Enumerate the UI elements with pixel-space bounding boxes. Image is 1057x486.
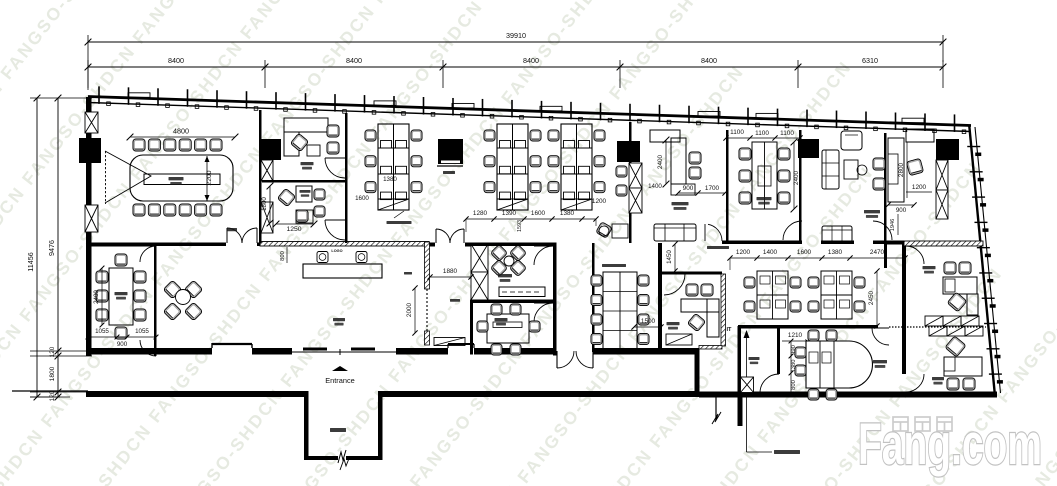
svg-text:9476: 9476 bbox=[47, 240, 56, 256]
svg-text:2000: 2000 bbox=[406, 302, 413, 317]
svg-text:2400: 2400 bbox=[93, 290, 100, 304]
svg-text:8400: 8400 bbox=[168, 56, 184, 65]
svg-text:1250: 1250 bbox=[286, 226, 301, 233]
svg-text:1400: 1400 bbox=[648, 183, 662, 190]
svg-text:IT: IT bbox=[727, 327, 733, 333]
svg-text:1100: 1100 bbox=[730, 129, 744, 136]
svg-text:1946: 1946 bbox=[890, 219, 896, 231]
svg-text:1500: 1500 bbox=[641, 318, 656, 325]
svg-text:8400: 8400 bbox=[346, 56, 362, 65]
svg-text:1600: 1600 bbox=[797, 249, 812, 256]
svg-text:120: 120 bbox=[49, 390, 56, 401]
svg-text:1200: 1200 bbox=[592, 198, 607, 205]
svg-text:1800: 1800 bbox=[49, 366, 56, 381]
svg-text:1800: 1800 bbox=[261, 197, 268, 211]
svg-text:11456: 11456 bbox=[26, 252, 35, 271]
svg-text:1450: 1450 bbox=[666, 250, 673, 264]
svg-text:1380: 1380 bbox=[560, 210, 575, 217]
svg-text:900: 900 bbox=[117, 341, 128, 348]
svg-text:6310: 6310 bbox=[862, 56, 878, 65]
svg-text:800: 800 bbox=[280, 251, 286, 261]
svg-text:1200: 1200 bbox=[736, 249, 751, 256]
svg-text:LOGO: LOGO bbox=[331, 249, 342, 253]
svg-text:Entrance: Entrance bbox=[325, 376, 355, 385]
svg-text:900: 900 bbox=[683, 185, 694, 192]
svg-text:1380: 1380 bbox=[383, 176, 397, 183]
svg-text:1390: 1390 bbox=[502, 210, 517, 217]
svg-text:2400: 2400 bbox=[657, 154, 664, 169]
svg-text:1100: 1100 bbox=[780, 130, 794, 137]
svg-text:39910: 39910 bbox=[506, 31, 526, 40]
svg-text:1200: 1200 bbox=[912, 184, 927, 191]
svg-text:900: 900 bbox=[896, 207, 907, 214]
svg-text:1593: 1593 bbox=[517, 220, 523, 232]
svg-text:1280: 1280 bbox=[473, 210, 488, 217]
svg-text:1880: 1880 bbox=[443, 268, 458, 275]
svg-text:8400: 8400 bbox=[701, 56, 717, 65]
svg-text:800: 800 bbox=[791, 380, 797, 390]
svg-text:1600: 1600 bbox=[355, 195, 369, 202]
svg-text:2450: 2450 bbox=[868, 290, 875, 305]
svg-text:2800: 2800 bbox=[898, 162, 905, 177]
svg-text:1700: 1700 bbox=[705, 185, 720, 192]
svg-text:2200: 2200 bbox=[206, 170, 213, 185]
svg-text:1055: 1055 bbox=[135, 328, 149, 335]
svg-text:120: 120 bbox=[49, 346, 56, 357]
svg-text:1055: 1055 bbox=[95, 328, 109, 335]
svg-text:2470: 2470 bbox=[870, 249, 885, 256]
svg-text:Fang.com: Fang.com bbox=[858, 412, 1042, 477]
svg-text:1380: 1380 bbox=[828, 249, 843, 256]
svg-text:8400: 8400 bbox=[523, 56, 539, 65]
svg-text:2400: 2400 bbox=[793, 170, 800, 185]
svg-text:1210: 1210 bbox=[788, 332, 803, 339]
svg-text:4800: 4800 bbox=[173, 127, 189, 136]
svg-text:1100: 1100 bbox=[755, 130, 769, 137]
svg-text:1600: 1600 bbox=[531, 210, 546, 217]
svg-text:1400: 1400 bbox=[763, 249, 778, 256]
